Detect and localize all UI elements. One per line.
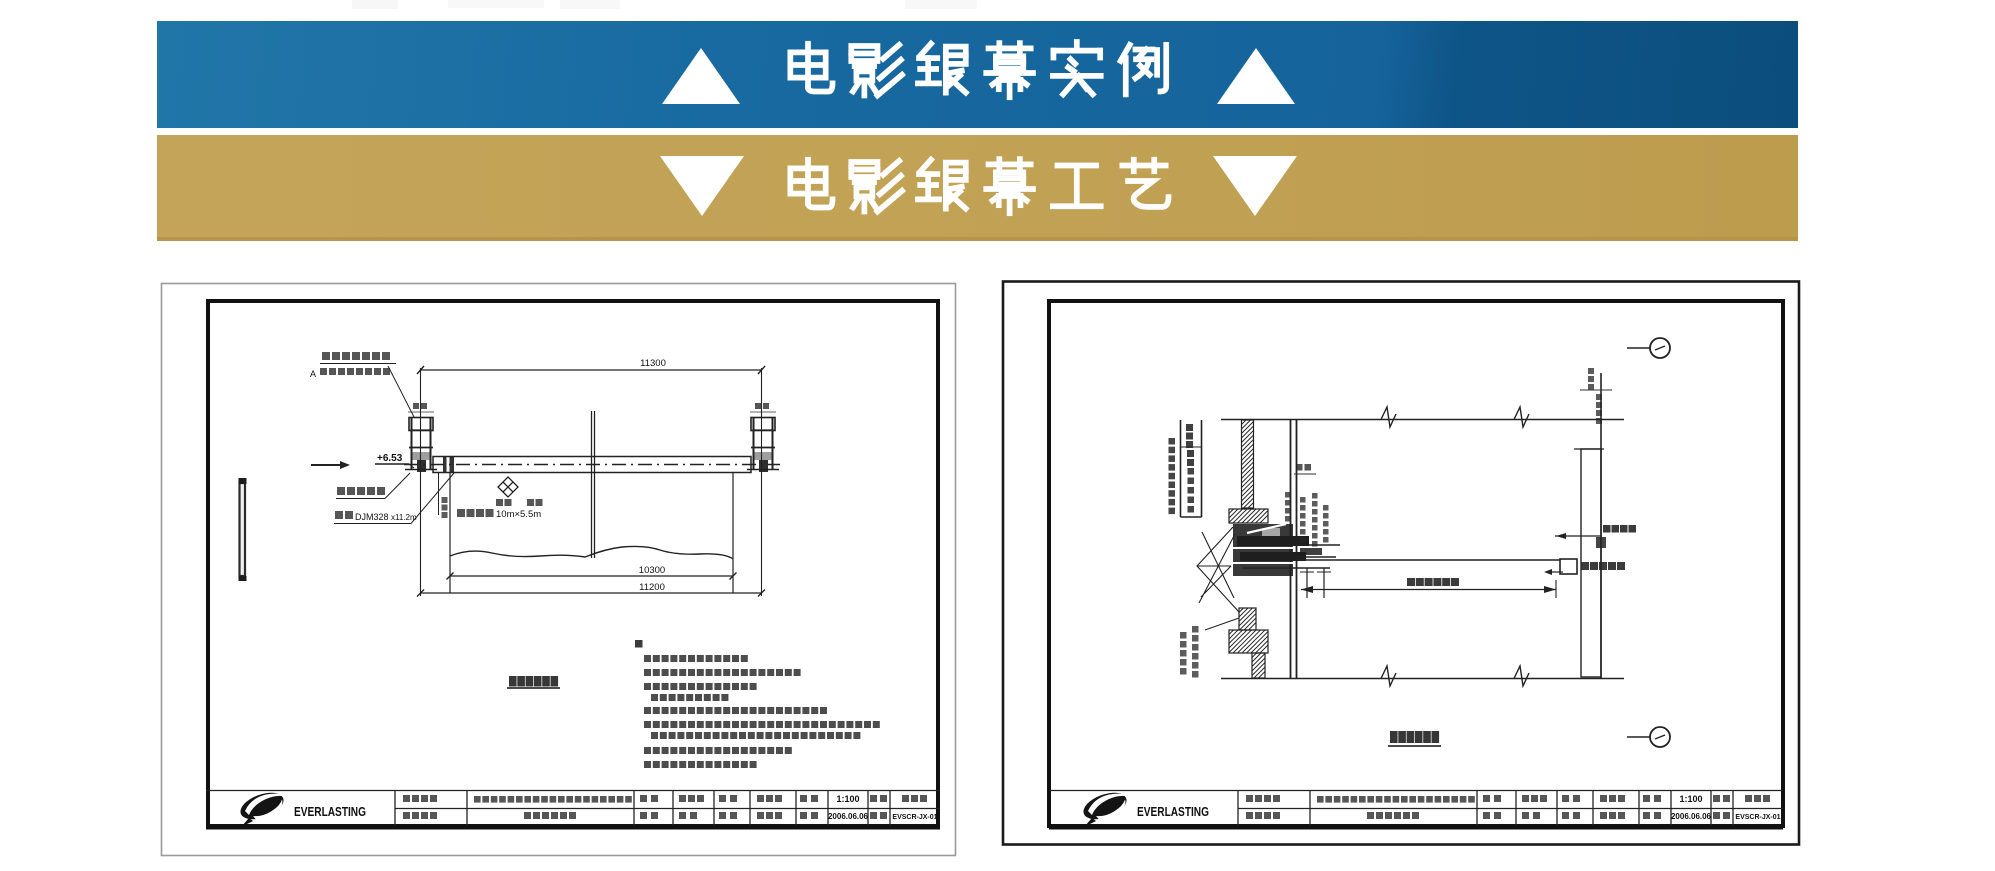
svg-text:EVERLASTING: EVERLASTING (294, 805, 366, 819)
svg-text:11300: 11300 (640, 358, 666, 369)
svg-text:EVERLASTING: EVERLASTING (1137, 805, 1209, 819)
svg-text:EVSCR-JX-01: EVSCR-JX-01 (892, 814, 937, 821)
svg-text:11200: 11200 (639, 582, 665, 593)
svg-text:EVSCR-JX-01: EVSCR-JX-01 (1735, 814, 1780, 821)
svg-text:1:100: 1:100 (1679, 794, 1702, 804)
svg-text:2006.06.06: 2006.06.06 (1671, 812, 1712, 821)
svg-text:2006.06.06: 2006.06.06 (828, 812, 869, 821)
svg-text:A: A (310, 369, 316, 379)
svg-text:10300: 10300 (639, 565, 665, 576)
svg-text:1:100: 1:100 (836, 794, 859, 804)
svg-text:DJM328: DJM328 (355, 512, 389, 522)
svg-text:+6.53: +6.53 (377, 453, 403, 464)
svg-text:10m×5.5m: 10m×5.5m (496, 509, 541, 520)
